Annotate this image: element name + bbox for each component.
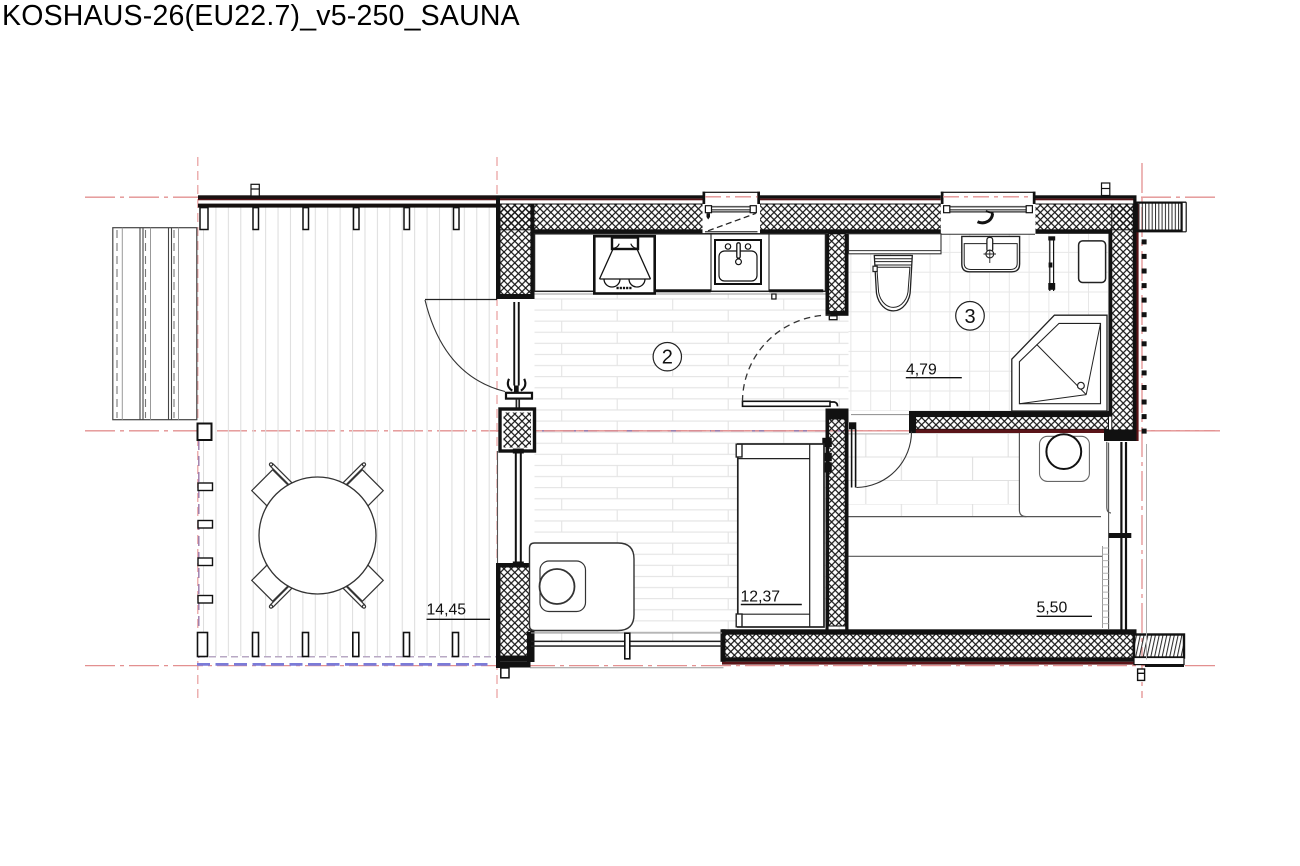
svg-text:5,50: 5,50	[1037, 600, 1068, 617]
svg-text:12,37: 12,37	[741, 589, 781, 606]
svg-text:4,79: 4,79	[906, 362, 937, 379]
svg-text:14,45: 14,45	[427, 602, 467, 619]
svg-text:2: 2	[662, 347, 673, 369]
svg-text:3: 3	[964, 306, 975, 328]
